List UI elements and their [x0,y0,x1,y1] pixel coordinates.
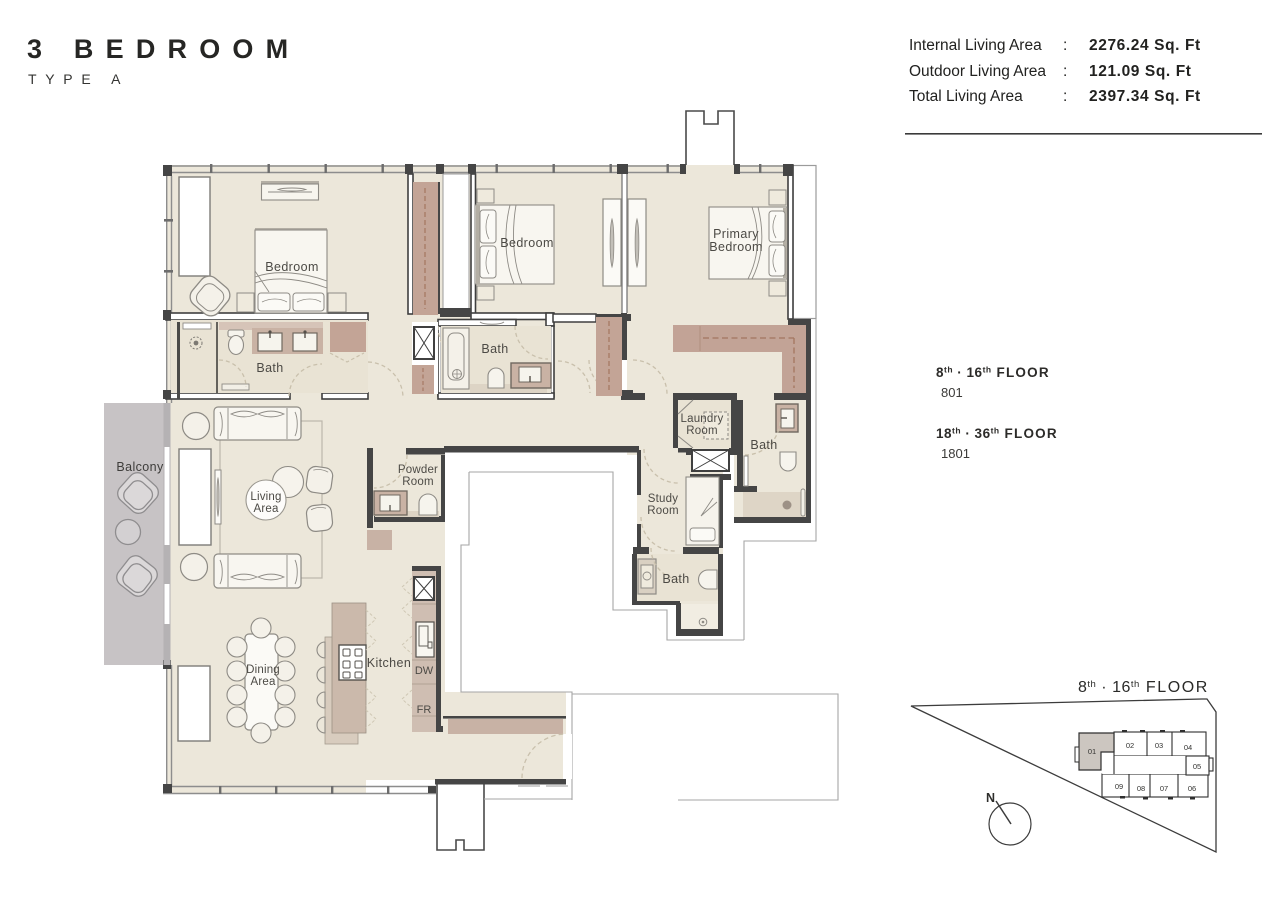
svg-text:Room: Room [402,476,433,488]
svg-text:2276.24 Sq. Ft: 2276.24 Sq. Ft [1089,37,1201,54]
svg-text:04: 04 [1184,743,1192,752]
svg-text:Laundry: Laundry [681,413,724,425]
svg-text:Kitchen: Kitchen [367,656,412,670]
svg-text:02: 02 [1126,741,1134,750]
svg-text:Bath: Bath [662,572,689,586]
svg-text:Living: Living [250,491,281,503]
svg-text:07: 07 [1160,784,1168,793]
svg-text:Room: Room [686,425,717,437]
svg-text:3 BEDROOM: 3 BEDROOM [27,34,300,64]
svg-text:05: 05 [1193,762,1201,771]
svg-text:09: 09 [1115,782,1123,791]
svg-text:06: 06 [1188,784,1196,793]
svg-text:Bath: Bath [256,361,283,375]
svg-text:DW: DW [415,665,434,677]
svg-text:Bath: Bath [481,342,508,356]
svg-text:Balcony: Balcony [116,460,164,474]
svg-text:8th · 16th FLOOR: 8th · 16th FLOOR [936,365,1050,381]
svg-text:FR: FR [417,704,432,716]
svg-text:Room: Room [647,505,678,517]
svg-text:03: 03 [1155,741,1163,750]
svg-text:Bedroom: Bedroom [265,260,319,274]
svg-text:TYPE A: TYPE A [28,71,129,87]
svg-text:1801: 1801 [941,446,970,461]
svg-text::: : [1063,37,1067,54]
svg-text:Study: Study [648,493,678,505]
svg-text:N: N [986,791,995,805]
svg-text:Bedroom: Bedroom [709,240,763,254]
svg-text:Bath: Bath [750,438,777,452]
svg-text:Area: Area [253,503,278,515]
svg-text:801: 801 [941,385,963,400]
svg-text:Outdoor Living Area: Outdoor Living Area [909,63,1046,80]
svg-text::: : [1063,88,1067,105]
svg-text:Bedroom: Bedroom [500,236,554,250]
svg-text::: : [1063,63,1067,80]
svg-text:Dining: Dining [246,664,280,676]
svg-text:Area: Area [250,676,275,688]
svg-text:18th · 36th FLOOR: 18th · 36th FLOOR [936,426,1058,442]
svg-text:Internal Living Area: Internal Living Area [909,37,1042,54]
svg-text:2397.34 Sq. Ft: 2397.34 Sq. Ft [1089,88,1201,105]
svg-text:8th · 16th FLOOR: 8th · 16th FLOOR [1078,679,1209,696]
svg-text:Primary: Primary [713,227,759,241]
svg-text:121.09 Sq. Ft: 121.09 Sq. Ft [1089,63,1192,80]
svg-text:08: 08 [1137,784,1145,793]
svg-text:Total Living Area: Total Living Area [909,88,1023,105]
svg-text:01: 01 [1088,747,1096,756]
svg-text:Powder: Powder [398,464,438,476]
